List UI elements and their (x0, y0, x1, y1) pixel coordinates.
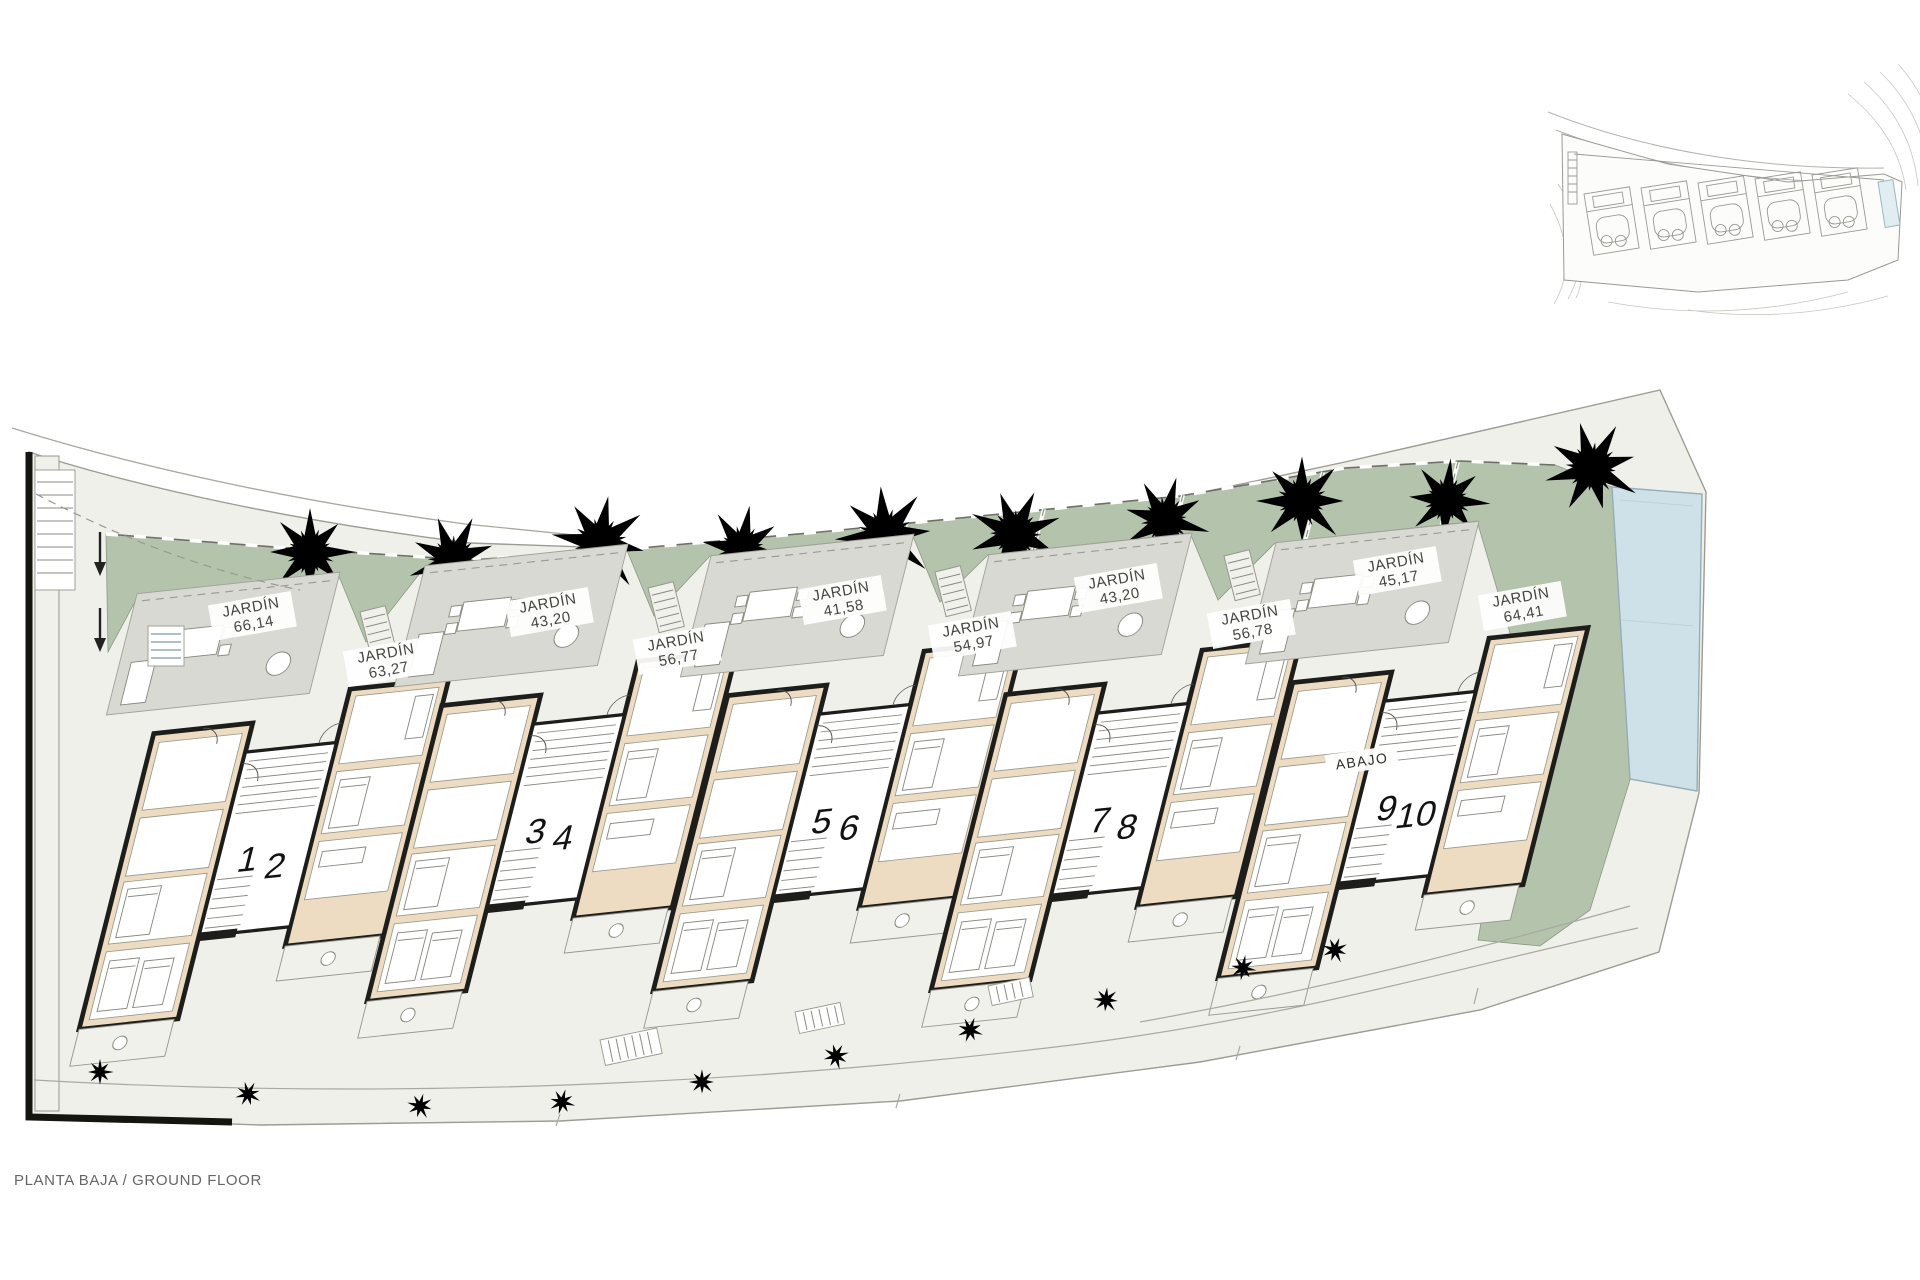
floor-label: PLANTA BAJA / GROUND FLOOR (14, 1172, 262, 1189)
side-stairs-icon (148, 626, 184, 666)
floorplan-svg: 1 2 3 4 5 6 7 8 9 10 ABAJO JARDÍN66,14 J… (0, 0, 1920, 1280)
site-location-inset (1548, 64, 1920, 315)
entrance-stairs-icon (35, 470, 75, 590)
floorplan-canvas: 1 2 3 4 5 6 7 8 9 10 ABAJO JARDÍN66,14 J… (0, 0, 1920, 1280)
